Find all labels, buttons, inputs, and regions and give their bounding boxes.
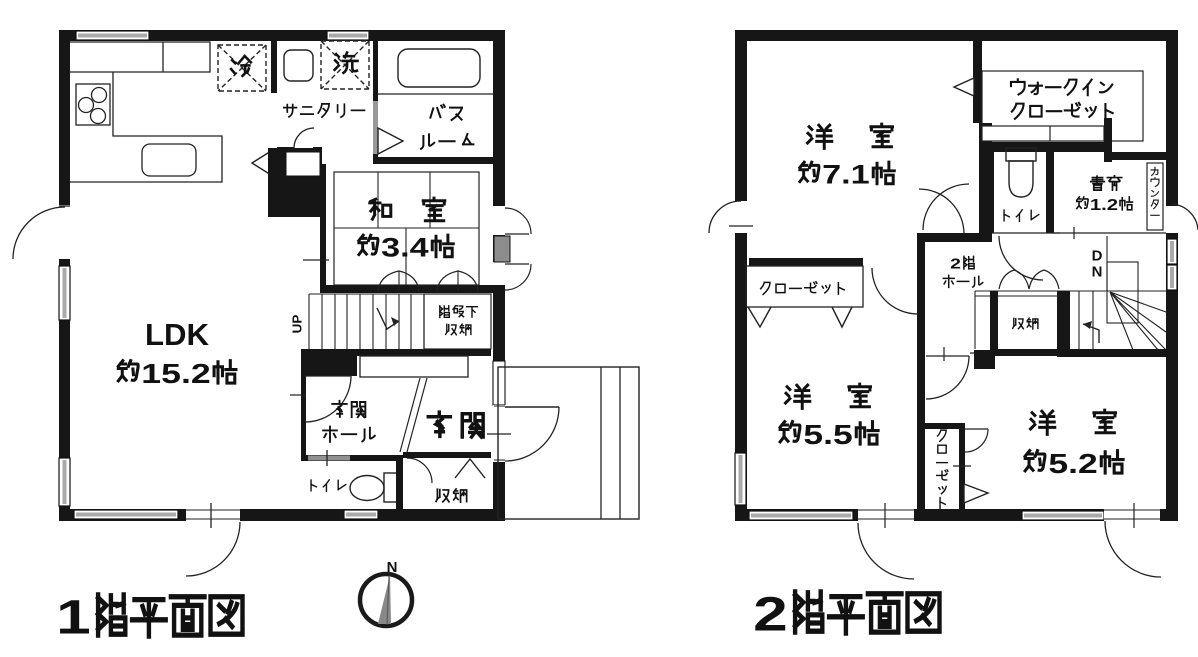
svg-text:LDK: LDK (145, 317, 210, 352)
svg-text:N: N (1092, 263, 1103, 280)
svg-text:7.1: 7.1 (822, 160, 870, 190)
svg-text:2: 2 (753, 588, 788, 641)
svg-text:1: 1 (56, 591, 91, 644)
svg-text:D: D (1092, 247, 1103, 264)
svg-text:UP: UP (290, 314, 305, 333)
svg-text:5.2: 5.2 (1048, 448, 1097, 479)
svg-text:3.4: 3.4 (381, 233, 429, 263)
svg-text:15.2: 15.2 (141, 358, 210, 389)
svg-text:2: 2 (950, 255, 961, 272)
svg-text:N: N (387, 559, 398, 576)
svg-text:5.5: 5.5 (803, 419, 852, 450)
svg-text:1.2: 1.2 (1090, 197, 1118, 214)
